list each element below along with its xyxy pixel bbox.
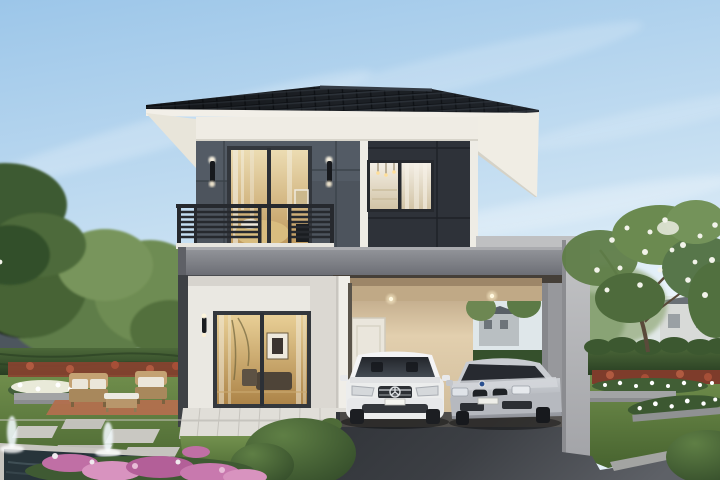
- headlight: [416, 386, 438, 396]
- pendant-light: [392, 170, 396, 174]
- headlight: [352, 386, 374, 396]
- trim-right-corner: [470, 141, 478, 248]
- downlight: [487, 291, 497, 301]
- windshield: [355, 357, 435, 377]
- hedge-right: [584, 337, 720, 375]
- wheel: [536, 407, 550, 423]
- downlight: [386, 294, 396, 304]
- headlight: [452, 388, 468, 396]
- wheel: [456, 411, 469, 425]
- railing-top-rail: [176, 204, 334, 208]
- side-mirror: [340, 375, 348, 381]
- upper-floor: [176, 141, 478, 249]
- headrest: [371, 362, 383, 372]
- license-plate: [478, 398, 498, 404]
- headrest: [406, 362, 418, 372]
- armchair: [242, 369, 257, 386]
- living-room-window: [213, 311, 311, 408]
- brand-roundel: [479, 381, 485, 387]
- corner-trim-dark: [178, 275, 188, 427]
- pendant-light: [384, 173, 388, 177]
- rendering-canvas: Architectural rendering of a modern two-…: [0, 0, 720, 480]
- air-intake: [502, 401, 532, 409]
- silver-sedan: [446, 358, 562, 430]
- upstairs-window: [367, 160, 434, 212]
- white-sedan: [340, 352, 450, 430]
- wheel: [350, 409, 364, 424]
- window-mullion: [398, 161, 402, 211]
- window-mullion: [260, 313, 264, 406]
- pendant-light: [376, 171, 380, 175]
- frieze-band: [196, 117, 478, 141]
- side-mirror: [446, 380, 453, 386]
- trim-middle: [360, 141, 368, 248]
- door-mullion: [267, 148, 271, 246]
- fascia-band: [178, 247, 590, 276]
- license-plate: [385, 399, 405, 405]
- wheel: [426, 409, 440, 424]
- headlight: [512, 386, 530, 394]
- scene-svg: [0, 0, 720, 480]
- wicker-sofa: [69, 373, 108, 407]
